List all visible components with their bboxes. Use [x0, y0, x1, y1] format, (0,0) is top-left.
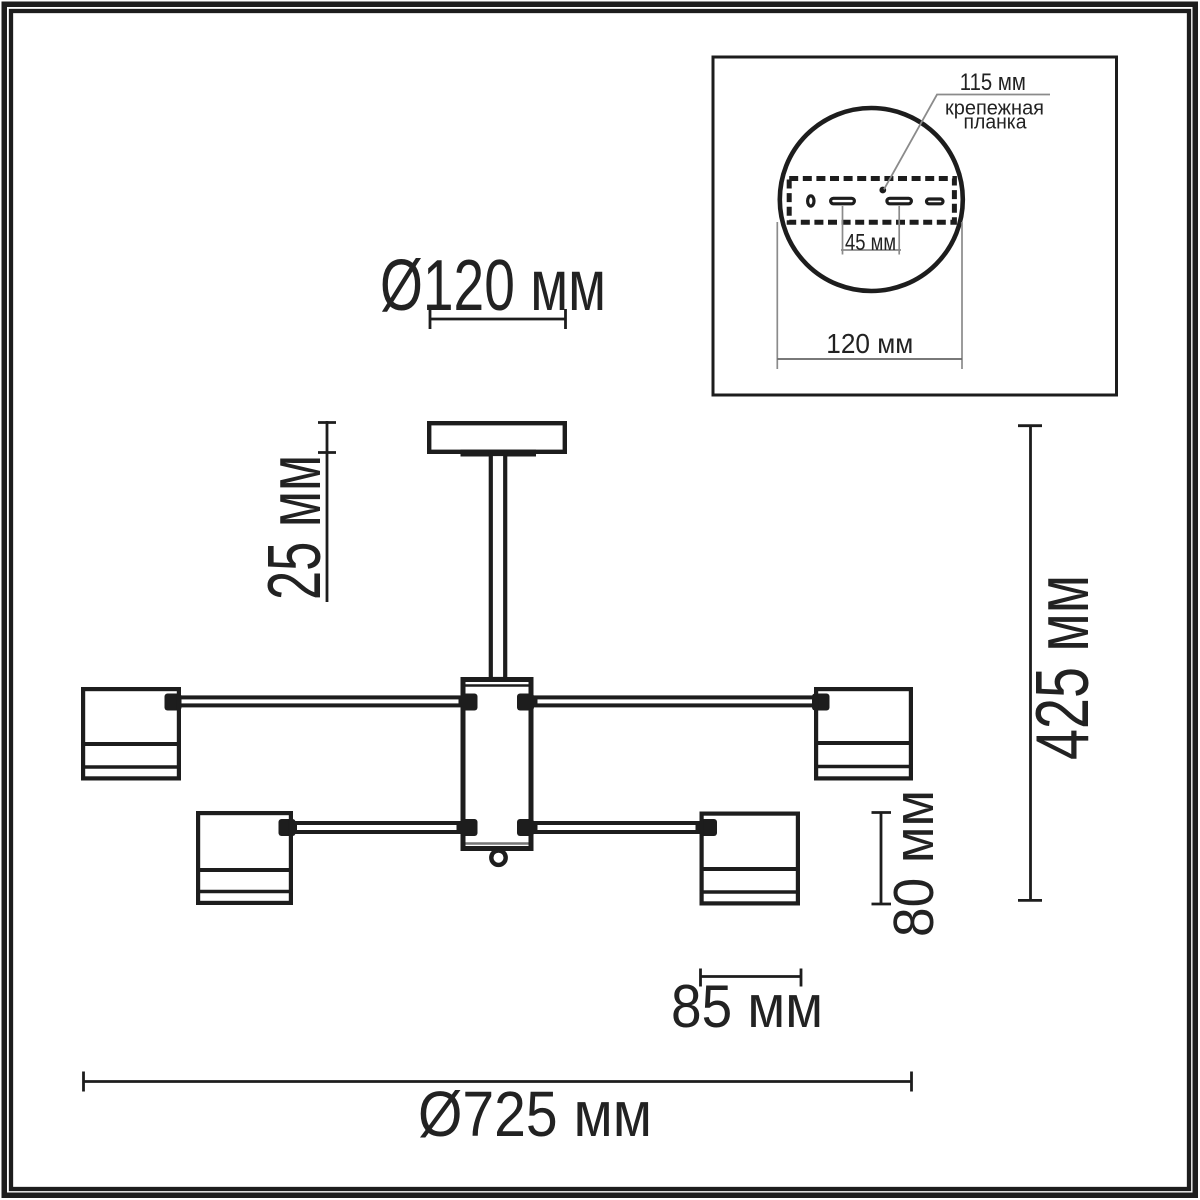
svg-text:планка: планка: [964, 112, 1028, 134]
svg-text:25 мм: 25 мм: [252, 455, 336, 600]
svg-text:85 мм: 85 мм: [671, 973, 823, 1040]
svg-text:425 мм: 425 мм: [1020, 575, 1104, 760]
svg-text:Ø725 мм: Ø725 мм: [418, 1078, 652, 1150]
svg-text:45 мм: 45 мм: [845, 229, 896, 255]
svg-text:80 мм: 80 мм: [882, 790, 946, 937]
svg-text:120 мм: 120 мм: [826, 328, 913, 359]
svg-text:115 мм: 115 мм: [960, 69, 1026, 96]
svg-text:Ø120 мм: Ø120 мм: [380, 246, 606, 326]
